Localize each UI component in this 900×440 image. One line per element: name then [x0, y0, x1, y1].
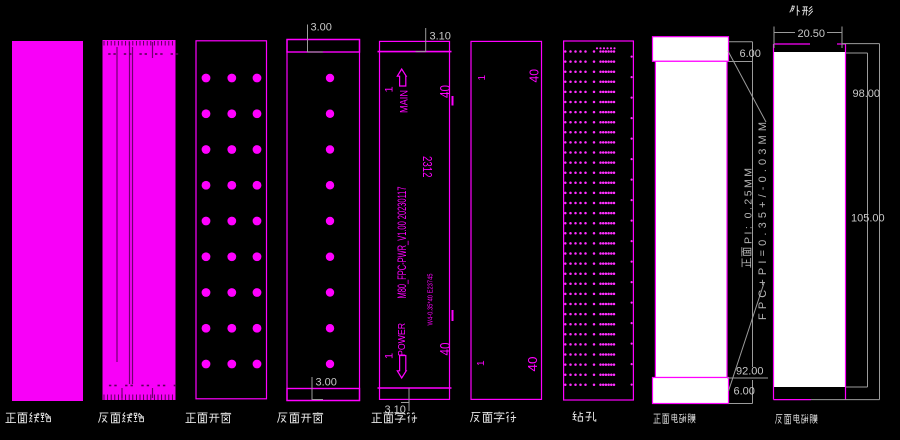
svg-text:POWER: POWER — [397, 323, 408, 356]
svg-text:40: 40 — [437, 343, 454, 356]
svg-text:1: 1 — [384, 86, 396, 92]
svg-text:2312: 2312 — [420, 156, 435, 178]
svg-text:6.00: 6.00 — [734, 386, 755, 398]
svg-text:W4-0.35*40 E23745: W4-0.35*40 E23745 — [428, 273, 435, 325]
svg-text:3.10: 3.10 — [430, 31, 451, 43]
svg-text:M80_FPC-PWR_V1.00 20230117: M80_FPC-PWR_V1.00 20230117 — [395, 186, 409, 298]
svg-text:MAIN: MAIN — [399, 90, 411, 113]
svg-text:3.00: 3.00 — [316, 377, 337, 389]
svg-text:40: 40 — [527, 69, 542, 83]
svg-text:3.00: 3.00 — [311, 22, 332, 34]
svg-text:105.00: 105.00 — [851, 213, 885, 225]
svg-text:1: 1 — [477, 75, 488, 81]
svg-text:20.50: 20.50 — [798, 28, 826, 40]
svg-text:1: 1 — [476, 360, 487, 366]
svg-text:1: 1 — [384, 353, 396, 359]
svg-text:98.00: 98.00 — [853, 88, 881, 100]
svg-text:40: 40 — [525, 357, 540, 372]
svg-text:40: 40 — [437, 85, 454, 98]
svg-text:6.00: 6.00 — [740, 48, 761, 60]
svg-text:92.00: 92.00 — [736, 366, 764, 378]
